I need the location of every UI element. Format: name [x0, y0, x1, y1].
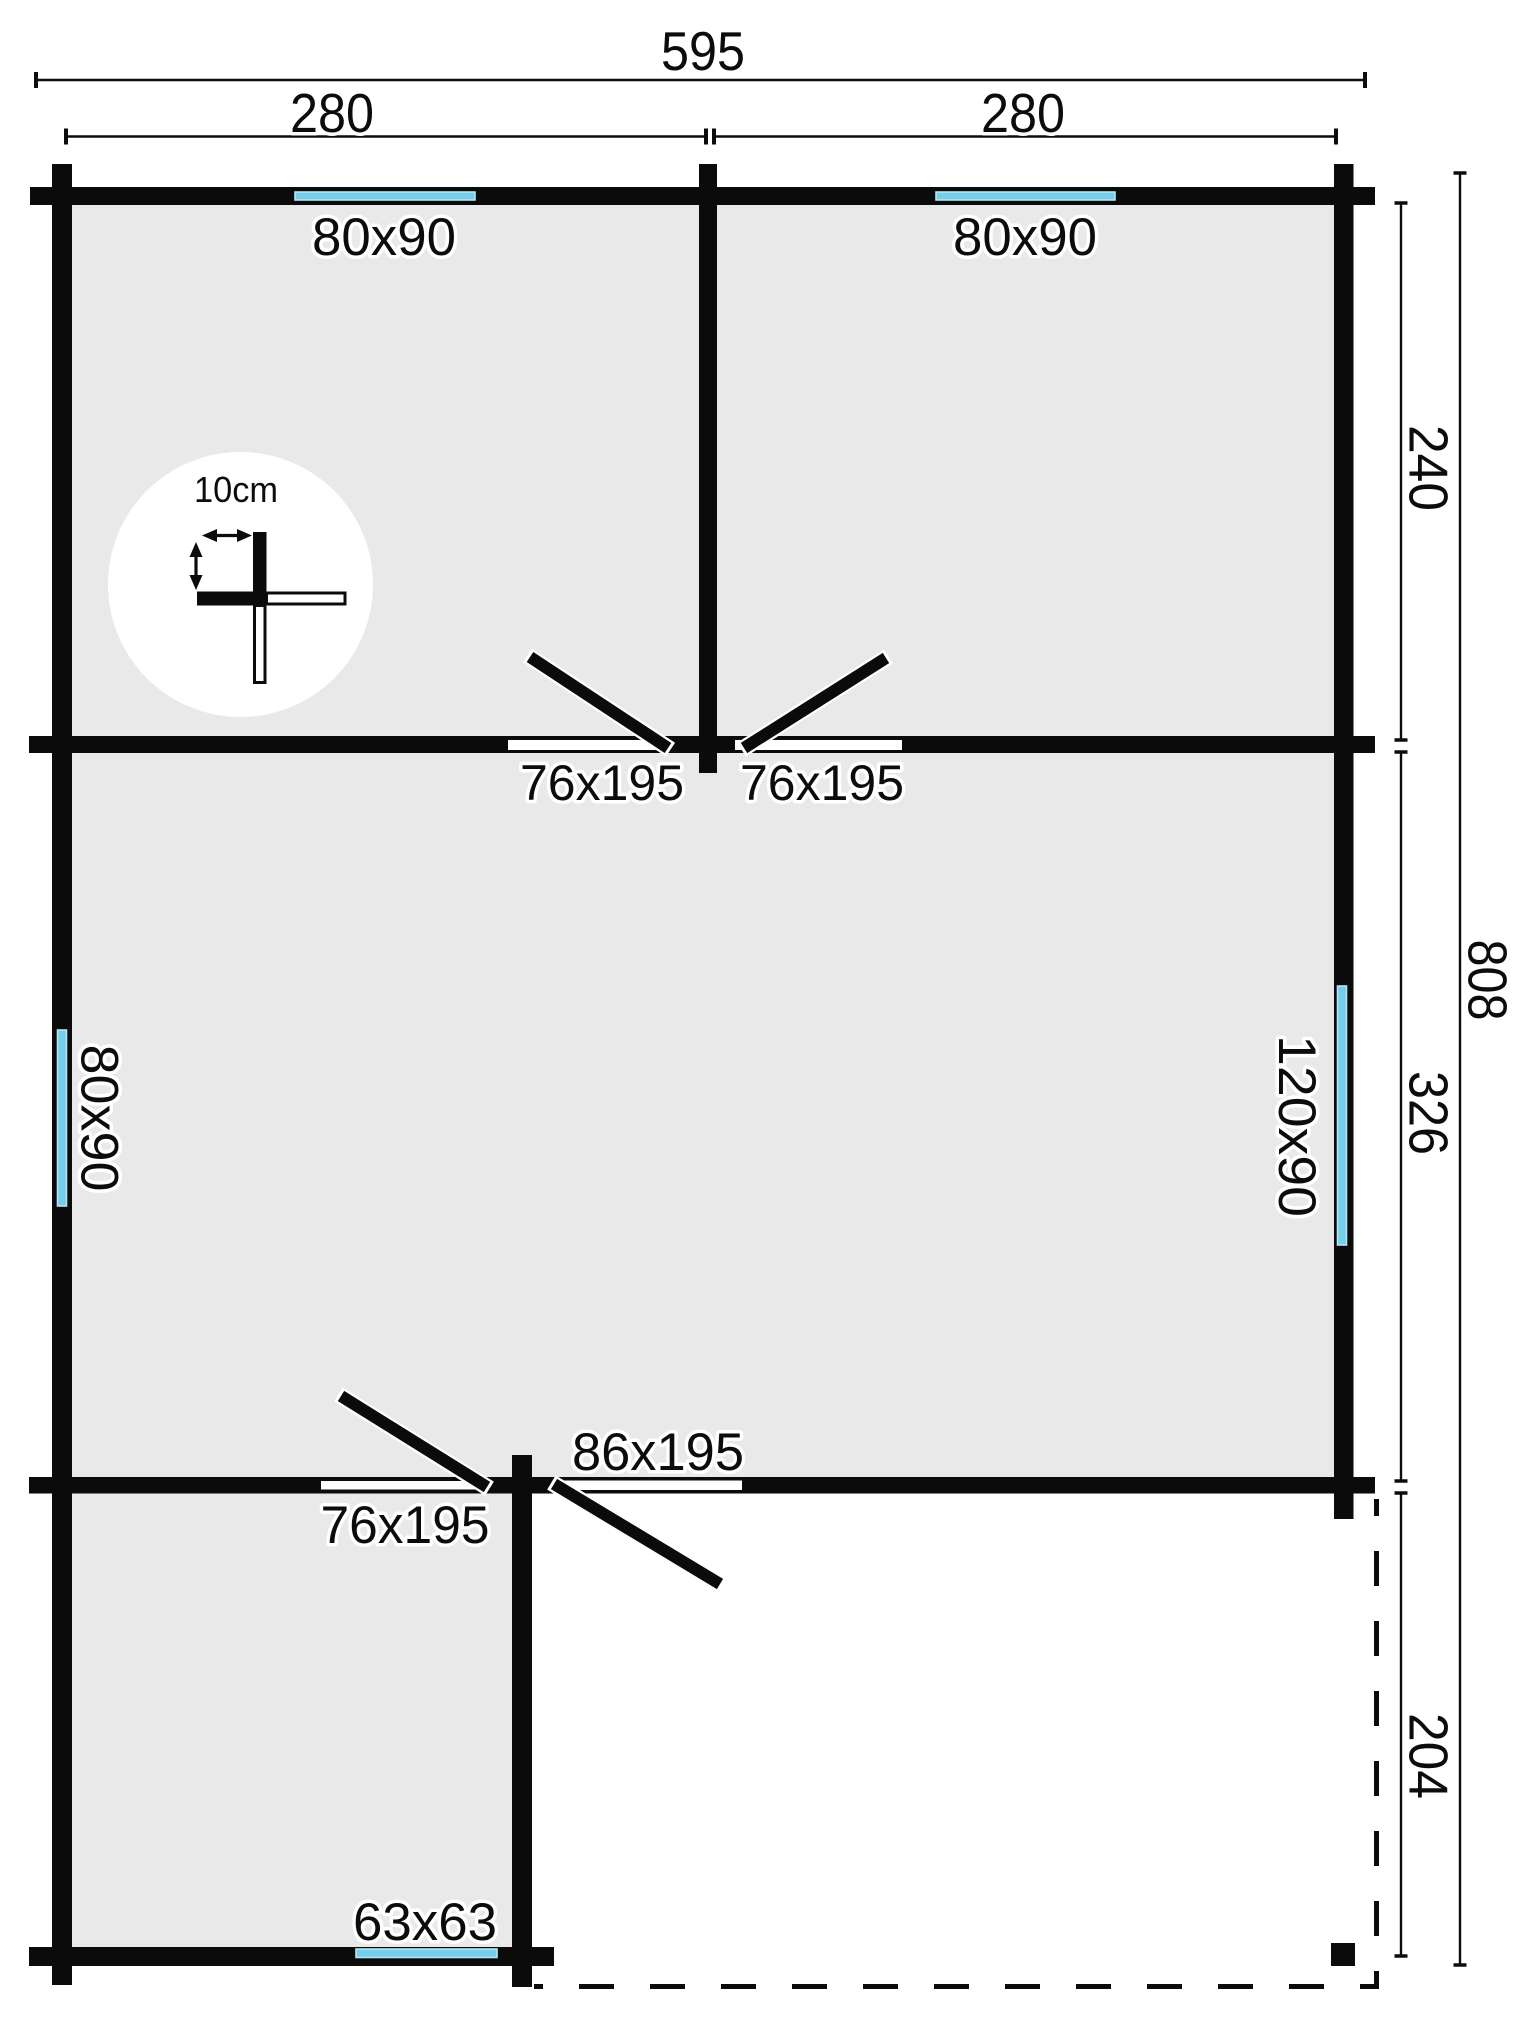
svg-text:204: 204: [1398, 1713, 1460, 1799]
svg-text:595: 595: [661, 20, 745, 82]
svg-text:76x195: 76x195: [520, 755, 684, 811]
svg-text:80x90: 80x90: [70, 1045, 129, 1192]
svg-text:808: 808: [1457, 940, 1519, 1021]
svg-text:76x195: 76x195: [321, 1496, 490, 1555]
svg-text:80x90: 80x90: [312, 208, 456, 267]
svg-text:326: 326: [1398, 1071, 1460, 1155]
svg-text:63x63: 63x63: [353, 1893, 497, 1952]
svg-text:240: 240: [1398, 425, 1460, 511]
svg-text:76x195: 76x195: [740, 755, 904, 811]
svg-text:80x90: 80x90: [953, 208, 1097, 267]
svg-text:120x90: 120x90: [1267, 1035, 1326, 1217]
svg-text:280: 280: [290, 82, 374, 144]
svg-text:86x195: 86x195: [572, 1423, 744, 1482]
svg-text:10cm: 10cm: [194, 469, 278, 510]
svg-text:280: 280: [981, 82, 1065, 144]
